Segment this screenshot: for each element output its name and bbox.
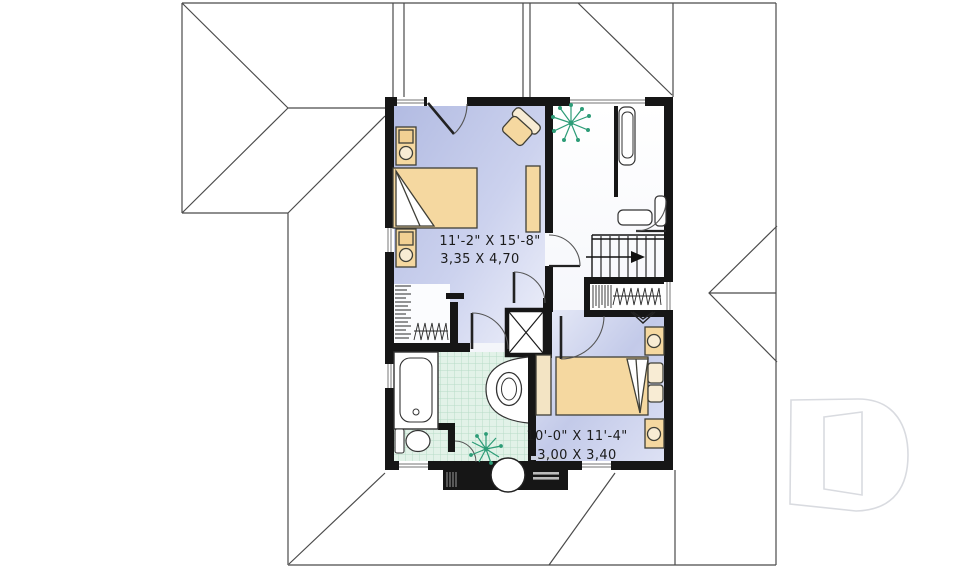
window-top-right — [570, 97, 645, 106]
window-left-bedroom1 — [385, 228, 394, 252]
pillow — [648, 385, 663, 402]
nightstand — [396, 127, 416, 165]
pillow — [648, 363, 663, 383]
window-left-bathroom — [385, 364, 394, 388]
floorplan-drawing: 11'-2" X 15'-8" 3,35 X 4,70 10'-0" X 11'… — [0, 0, 960, 569]
logo-outer-outline — [790, 399, 908, 511]
bedroom2-dim-metric: 3,00 X 3,40 — [537, 448, 616, 463]
wall-wc-jog-a — [438, 423, 455, 430]
bedroom2-dim-imperial: 10'-0" X 11'-4" — [526, 429, 627, 444]
chimney-flue — [491, 458, 525, 492]
wall-bedroom1-right-upper — [545, 106, 553, 233]
nightstand — [396, 229, 416, 267]
nightstand — [645, 419, 664, 448]
wall-bedroom2-top — [586, 310, 673, 317]
floorplan-page: 11'-2" X 15'-8" 3,35 X 4,70 10'-0" X 11'… — [0, 0, 960, 569]
wall-closet-jamb — [446, 293, 464, 299]
logo-inner-outline — [824, 412, 862, 495]
bedroom1-dim-imperial: 11'-2" X 15'-8" — [439, 234, 540, 249]
brand-logo-d: D — [790, 399, 908, 511]
linen-chase-box — [507, 310, 545, 355]
wall-closet-partition — [450, 302, 458, 347]
wall-bath-bedroom2 — [528, 352, 536, 462]
dresser-bedroom1 — [526, 166, 540, 232]
wall-wc-jog-b — [448, 430, 455, 452]
window-bottom-bath — [399, 461, 428, 470]
wall-sitting-room — [614, 106, 618, 197]
bed-bedroom1 — [393, 168, 477, 228]
dresser-bedroom2 — [536, 355, 551, 415]
bed-bedroom2 — [556, 357, 663, 415]
closet-shelves-hatch — [593, 285, 611, 308]
window-right-landing — [664, 282, 673, 310]
bedroom1-dim-metric: 3,35 X 4,70 — [440, 252, 519, 267]
wall-stairs-bottom — [586, 277, 673, 284]
bench — [618, 210, 652, 225]
wall-left — [385, 97, 394, 470]
tub-drain — [413, 409, 419, 415]
window-top-left — [397, 97, 424, 106]
bathtub — [394, 352, 438, 429]
toilet — [395, 429, 430, 453]
entry-door-opening — [427, 97, 467, 106]
nightstand — [645, 327, 664, 355]
